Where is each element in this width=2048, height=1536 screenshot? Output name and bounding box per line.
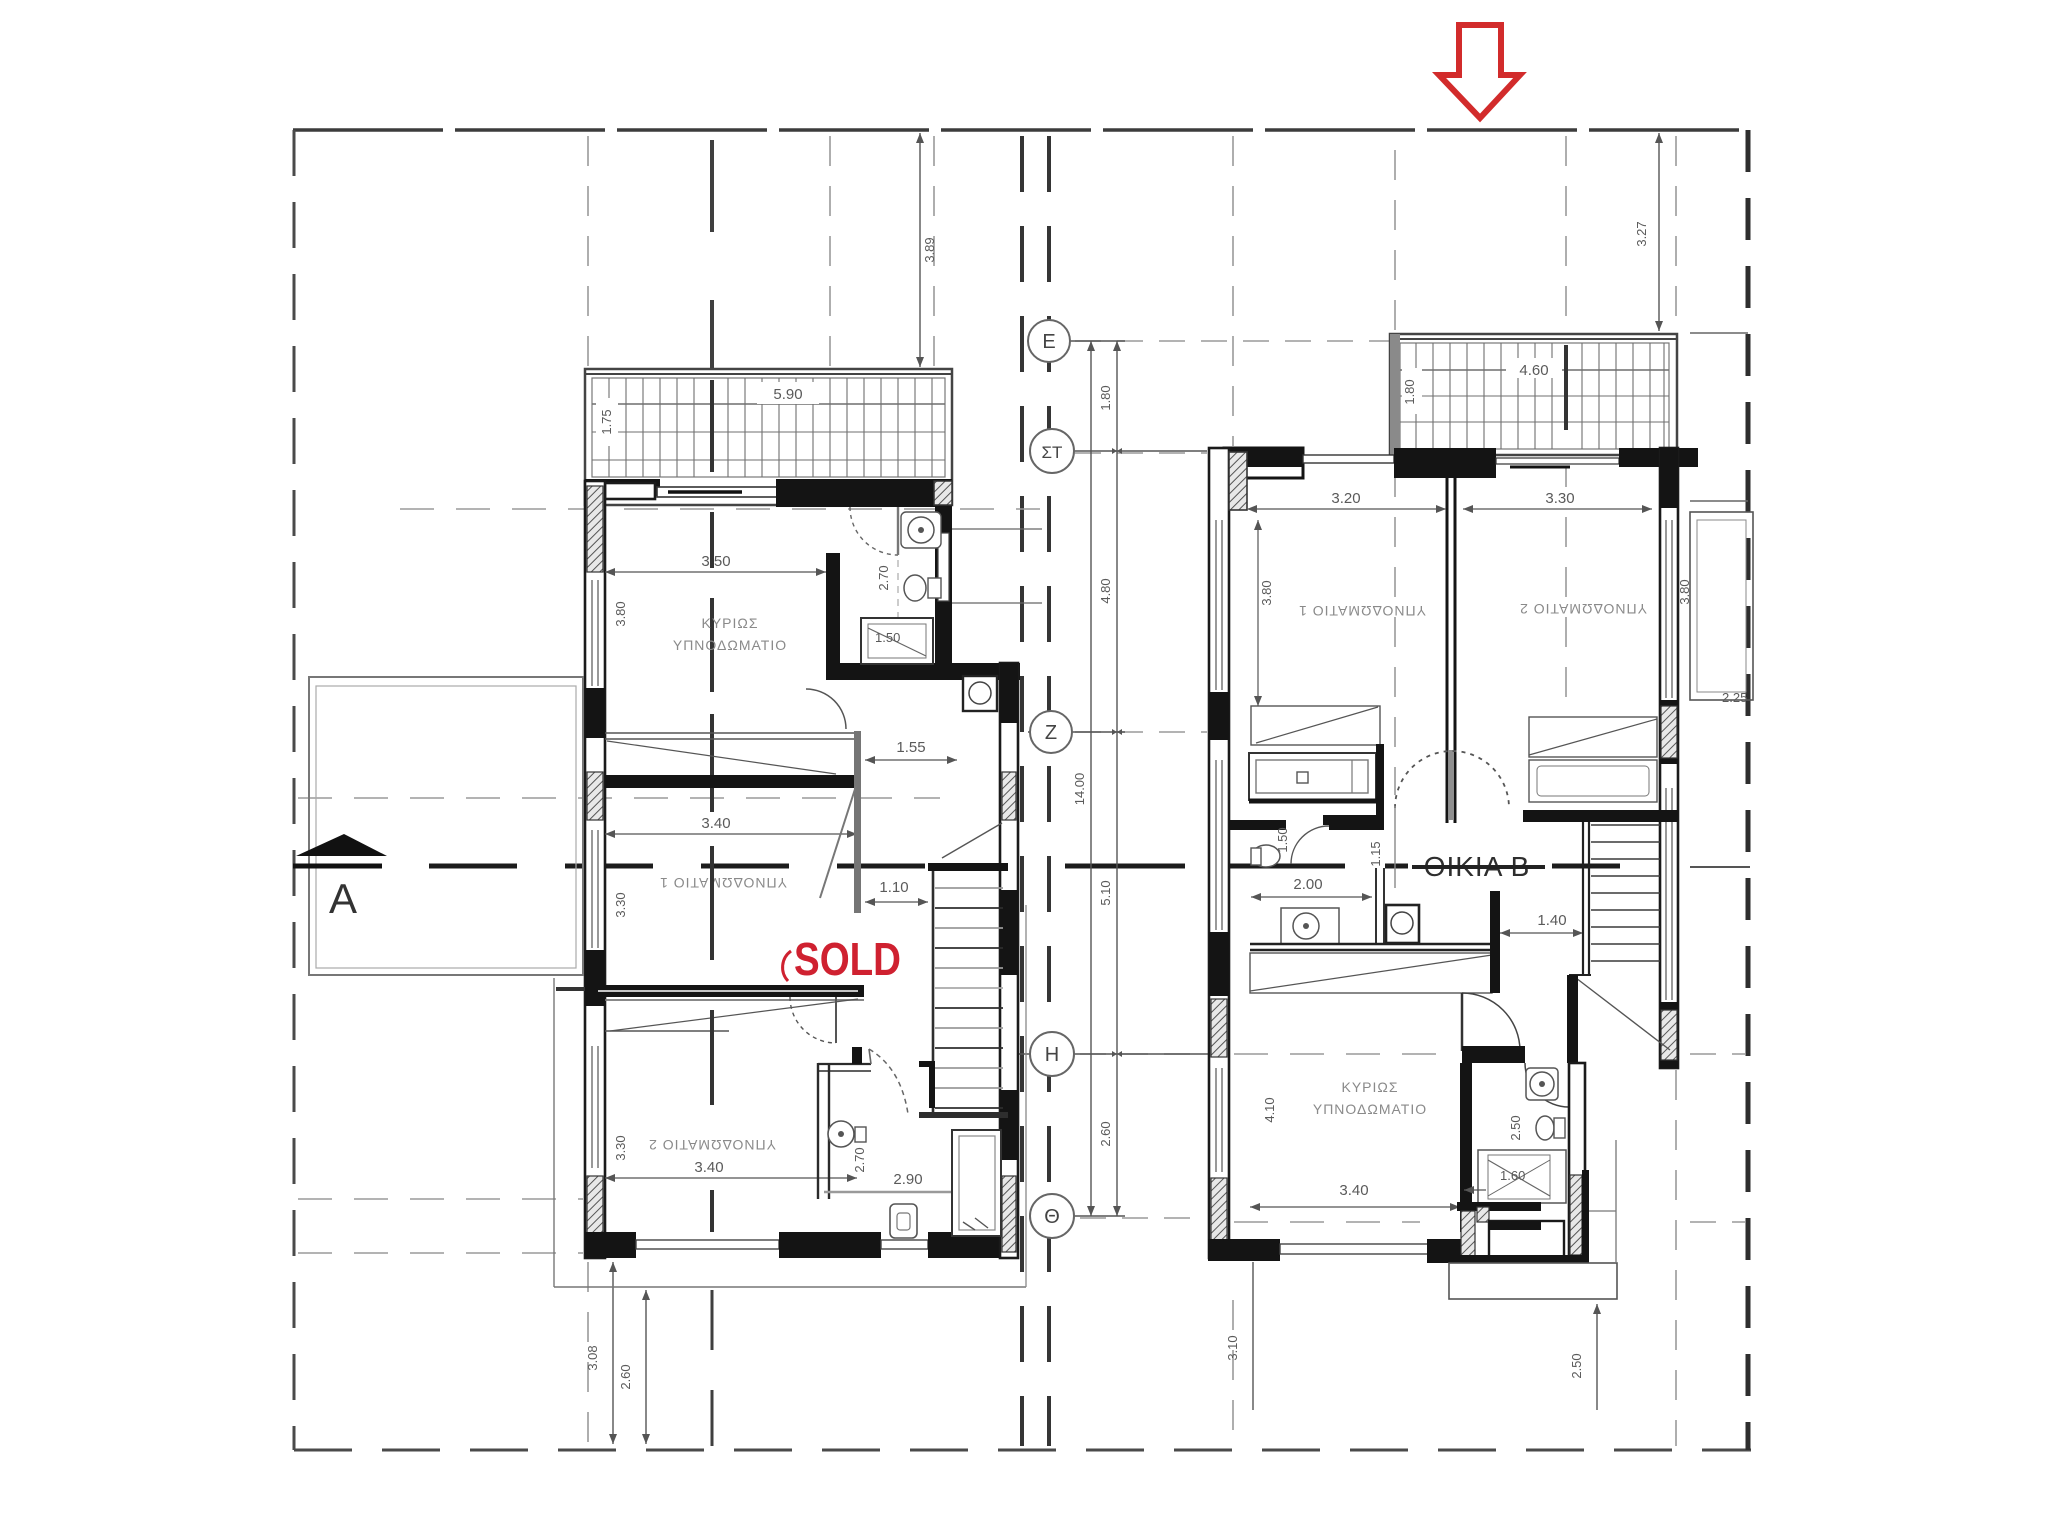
svg-text:ΥΠΝΟΔΩΜΑΤΙΟ 1: ΥΠΝΟΔΩΜΑΤΙΟ 1 (659, 875, 787, 891)
svg-text:5.90: 5.90 (773, 386, 802, 403)
svg-text:2.60: 2.60 (1098, 1121, 1113, 1146)
svg-text:1.40: 1.40 (1537, 912, 1566, 929)
svg-text:3.89: 3.89 (922, 237, 937, 262)
svg-text:SOLD: SOLD (794, 933, 901, 985)
svg-text:3.40: 3.40 (701, 815, 730, 832)
svg-text:2.25: 2.25 (1722, 690, 1747, 705)
svg-text:1.50: 1.50 (875, 630, 900, 645)
svg-text:1.55: 1.55 (896, 739, 925, 756)
svg-text:3.30: 3.30 (613, 892, 628, 917)
svg-text:E: E (1042, 331, 1055, 353)
svg-text:14.00: 14.00 (1072, 773, 1087, 806)
svg-text:3.30: 3.30 (1545, 490, 1574, 507)
svg-text:1.10: 1.10 (879, 879, 908, 896)
svg-text:1.80: 1.80 (1402, 379, 1417, 404)
svg-text:5.10: 5.10 (1098, 880, 1113, 905)
svg-text:3.08: 3.08 (585, 1345, 600, 1370)
svg-text:3.80: 3.80 (1677, 579, 1692, 604)
svg-text:1.80: 1.80 (1098, 385, 1113, 410)
svg-text:1.15: 1.15 (1368, 841, 1383, 866)
svg-text:3.27: 3.27 (1634, 221, 1649, 246)
svg-text:ΥΠΝΟΔΩΜΑΤΙΟ 2: ΥΠΝΟΔΩΜΑΤΙΟ 2 (648, 1137, 776, 1153)
svg-text:2.70: 2.70 (852, 1147, 867, 1172)
svg-text:Z: Z (1045, 722, 1057, 744)
svg-text:ΥΠΝΟΔΩΜΑΤΙΟ 2: ΥΠΝΟΔΩΜΑΤΙΟ 2 (1519, 601, 1647, 617)
svg-text:ΚΥΡΙΩΣ: ΚΥΡΙΩΣ (701, 615, 758, 631)
svg-text:3.80: 3.80 (1259, 580, 1274, 605)
svg-text:ΣΤ: ΣΤ (1042, 443, 1063, 462)
svg-text:2.50: 2.50 (1508, 1115, 1523, 1140)
svg-text:3.50: 3.50 (701, 553, 730, 570)
svg-text:ΥΠΝΟΔΩΜΑΤΙΟ: ΥΠΝΟΔΩΜΑΤΙΟ (1313, 1101, 1427, 1117)
svg-text:1.50: 1.50 (1275, 827, 1290, 852)
svg-text:3.10: 3.10 (1225, 1335, 1240, 1360)
svg-text:H: H (1045, 1044, 1059, 1066)
svg-text:3.40: 3.40 (694, 1159, 723, 1176)
svg-text:2.00: 2.00 (1293, 876, 1322, 893)
svg-text:2.90: 2.90 (893, 1171, 922, 1188)
svg-text:3.40: 3.40 (1339, 1182, 1368, 1199)
svg-text:ΚΥΡΙΩΣ: ΚΥΡΙΩΣ (1341, 1079, 1398, 1095)
svg-text:3.20: 3.20 (1331, 490, 1360, 507)
svg-text:2.50: 2.50 (1569, 1353, 1584, 1378)
svg-text:4.10: 4.10 (1262, 1097, 1277, 1122)
svg-text:ΥΠΝΟΔΩΜΑΤΙΟ 1: ΥΠΝΟΔΩΜΑΤΙΟ 1 (1298, 603, 1426, 619)
svg-text:3.80: 3.80 (613, 601, 628, 626)
svg-text:2.70: 2.70 (876, 565, 891, 590)
svg-text:1.60: 1.60 (1500, 1168, 1525, 1183)
svg-text:ΥΠΝΟΔΩΜΑΤΙΟ: ΥΠΝΟΔΩΜΑΤΙΟ (673, 637, 787, 653)
svg-text:1.75: 1.75 (599, 409, 614, 434)
svg-text:2.60: 2.60 (618, 1364, 633, 1389)
svg-text:A: A (329, 875, 357, 922)
svg-text:3.30: 3.30 (613, 1135, 628, 1160)
svg-text:4.80: 4.80 (1098, 578, 1113, 603)
svg-text:Θ: Θ (1044, 1206, 1060, 1228)
svg-text:4.60: 4.60 (1519, 362, 1548, 379)
